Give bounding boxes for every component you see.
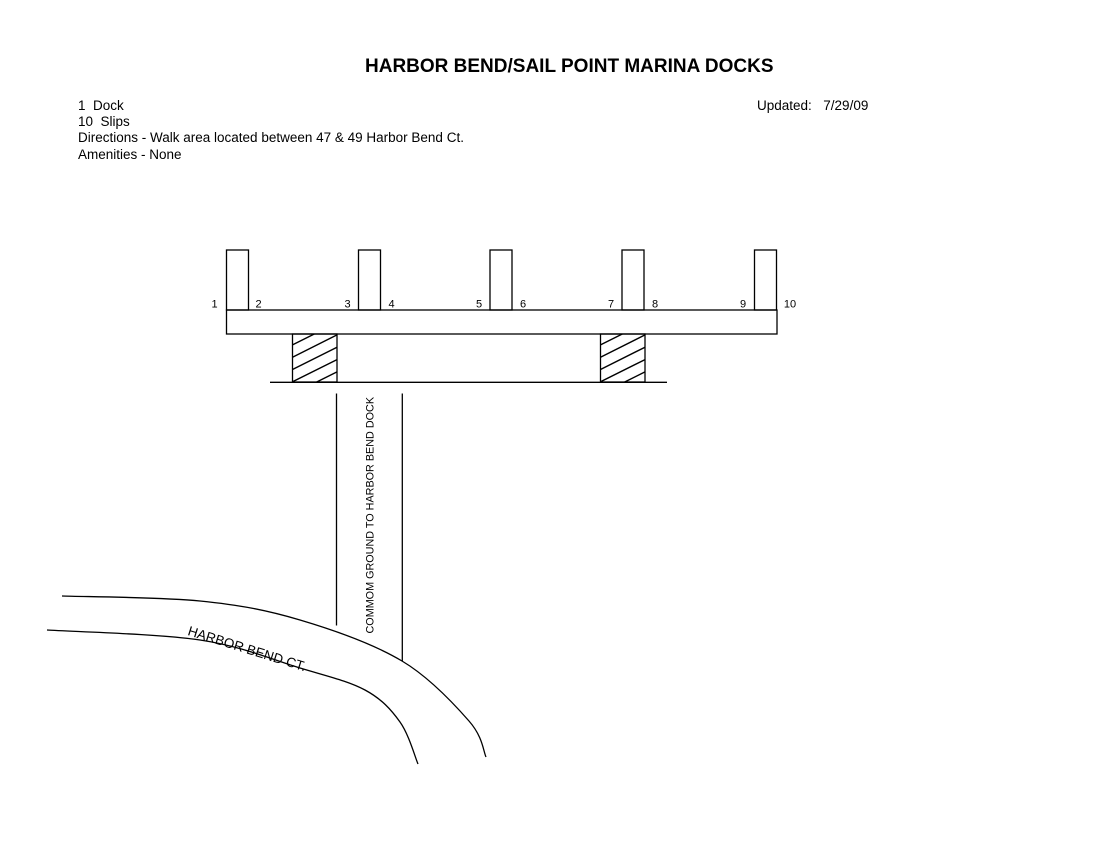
svg-text:2: 2 (255, 299, 261, 311)
svg-text:7: 7 (608, 299, 614, 311)
svg-text:3: 3 (344, 299, 350, 311)
svg-text:10: 10 (784, 299, 796, 311)
svg-text:HARBOR BEND CT.: HARBOR BEND CT. (186, 623, 308, 674)
svg-text:8: 8 (652, 299, 658, 311)
svg-text:COMMOM GROUND TO HARBOR BEND D: COMMOM GROUND TO HARBOR BEND DOCK (365, 396, 377, 633)
svg-text:6: 6 (520, 299, 526, 311)
svg-text:5: 5 (476, 299, 482, 311)
svg-text:1: 1 (211, 299, 217, 311)
svg-text:9: 9 (740, 299, 746, 311)
svg-text:4: 4 (388, 299, 394, 311)
